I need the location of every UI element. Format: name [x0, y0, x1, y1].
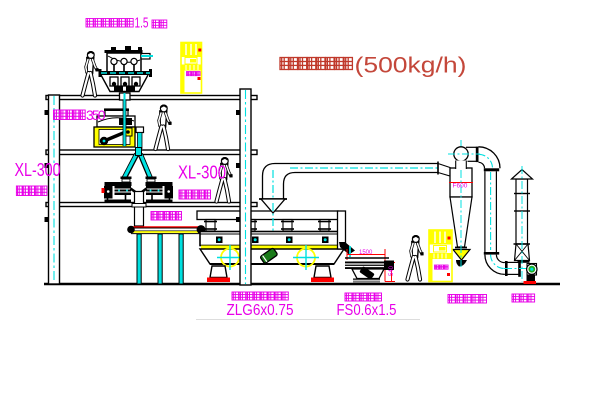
svg-text:540: 540	[389, 265, 395, 276]
svg-text:XL-300: XL-300	[15, 159, 61, 180]
svg-text:XL-300: XL-300	[178, 162, 226, 183]
svg-text:(500kg/h): (500kg/h)	[355, 53, 467, 78]
svg-text:1500: 1500	[359, 250, 373, 256]
svg-text:350: 350	[86, 107, 106, 123]
svg-text:ZLG6x0.75: ZLG6x0.75	[227, 302, 294, 319]
svg-text:F600: F600	[453, 183, 468, 190]
svg-text:FS0.6x1.5: FS0.6x1.5	[337, 302, 397, 319]
svg-text:1.5: 1.5	[135, 15, 149, 32]
